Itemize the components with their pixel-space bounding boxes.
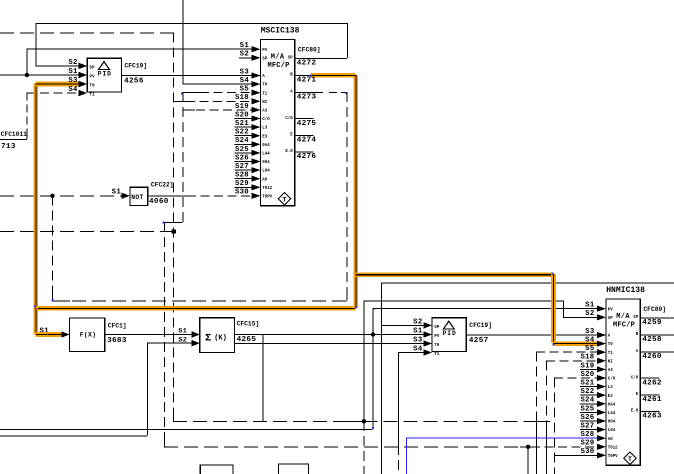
svg-text:S20: S20	[580, 371, 594, 379]
svg-text:SP: SP	[434, 325, 440, 330]
svg-text:S4: S4	[68, 86, 78, 94]
svg-text:S30: S30	[580, 448, 594, 456]
svg-text:A0: A0	[262, 178, 267, 182]
svg-text:S1: S1	[585, 302, 595, 310]
svg-text:S2: S2	[68, 59, 77, 67]
svg-text:S3: S3	[68, 77, 78, 85]
svg-text:PV: PV	[434, 334, 440, 339]
svg-text:HNMIC138: HNMIC138	[606, 286, 645, 295]
svg-text:MFC/P: MFC/P	[613, 321, 635, 329]
svg-text:S3: S3	[585, 328, 595, 336]
svg-text:SP: SP	[608, 317, 613, 321]
svg-text:S5: S5	[240, 86, 249, 94]
svg-text:T0: T0	[262, 84, 267, 88]
svg-text:4259: 4259	[642, 319, 662, 327]
svg-text:SP: SP	[633, 316, 638, 320]
svg-text:4258: 4258	[642, 336, 662, 344]
svg-text:4276: 4276	[297, 153, 317, 161]
svg-text:A0: A0	[608, 438, 613, 442]
svg-text:E3: E3	[608, 395, 613, 399]
svg-text:L3: L3	[608, 386, 613, 390]
svg-text:C/O: C/O	[285, 116, 293, 121]
svg-text:PV: PV	[608, 308, 613, 312]
svg-text:M/A: M/A	[616, 313, 630, 321]
svg-text:T1: T1	[89, 93, 95, 98]
svg-text:CFC22]: CFC22]	[151, 182, 174, 189]
svg-text:MFC/P: MFC/P	[268, 62, 290, 70]
svg-text:S4: S4	[413, 346, 423, 354]
svg-text:4060: 4060	[149, 198, 169, 206]
svg-text:4261: 4261	[642, 396, 662, 404]
svg-text:713: 713	[1, 143, 16, 151]
svg-text:SP: SP	[262, 57, 267, 61]
svg-text:NI: NI	[608, 360, 613, 364]
svg-text:4260: 4260	[642, 353, 662, 361]
svg-text:S18: S18	[235, 94, 249, 102]
svg-text:C/O: C/O	[262, 117, 270, 122]
svg-text:T: T	[283, 196, 287, 203]
svg-text:Σ: Σ	[205, 333, 211, 345]
svg-text:S5: S5	[585, 345, 594, 353]
svg-text:E3: E3	[262, 135, 267, 139]
svg-text:4262: 4262	[642, 379, 662, 387]
svg-text:004: 004	[262, 161, 270, 165]
svg-text:MSCIC138: MSCIC138	[261, 27, 300, 36]
svg-text:C/O: C/O	[631, 375, 639, 380]
svg-text:PV: PV	[262, 49, 267, 53]
svg-text:NI: NI	[262, 101, 267, 105]
svg-text:S30: S30	[235, 189, 249, 197]
svg-text:A3: A3	[262, 110, 267, 114]
svg-text:4256: 4256	[124, 78, 144, 86]
svg-text:4257: 4257	[469, 337, 489, 345]
svg-text:4271: 4271	[297, 77, 317, 85]
svg-text:L44: L44	[608, 412, 616, 416]
svg-text:PID: PID	[98, 71, 112, 78]
svg-text:CFC1]: CFC1]	[108, 323, 127, 330]
svg-text:CFC80]: CFC80]	[298, 47, 321, 54]
svg-text:4274: 4274	[297, 137, 317, 145]
svg-text:SP: SP	[288, 57, 293, 61]
svg-text:4272: 4272	[297, 60, 317, 68]
svg-text:T0: T0	[434, 343, 440, 348]
svg-text:S4: S4	[240, 77, 250, 85]
svg-text:L04: L04	[608, 429, 616, 433]
svg-text:0A4: 0A4	[262, 144, 270, 148]
svg-text:T1: T1	[262, 92, 267, 96]
svg-text:S4: S4	[585, 337, 595, 345]
svg-text:S1: S1	[240, 42, 250, 50]
svg-text:A3: A3	[608, 369, 613, 373]
svg-text:S18: S18	[580, 354, 594, 362]
svg-text:E.0: E.0	[631, 410, 639, 414]
svg-text:4275: 4275	[297, 120, 317, 128]
svg-text:3683: 3683	[107, 337, 127, 345]
svg-text:004: 004	[608, 421, 616, 425]
svg-text:S3: S3	[413, 337, 423, 345]
svg-text:S1: S1	[413, 328, 423, 336]
svg-text:S1: S1	[112, 189, 122, 197]
svg-text:T0: T0	[89, 84, 95, 89]
svg-text:CFC15]: CFC15]	[237, 321, 260, 328]
svg-text:T: T	[628, 456, 632, 463]
svg-text:S2: S2	[413, 319, 422, 327]
svg-text:PV: PV	[89, 75, 95, 80]
svg-text:S28: S28	[580, 431, 594, 439]
svg-text:L3: L3	[262, 127, 267, 131]
svg-text:S19: S19	[235, 103, 249, 111]
svg-text:C/O: C/O	[608, 377, 616, 382]
svg-text:4273: 4273	[297, 93, 317, 101]
svg-text:T1: T1	[608, 352, 613, 356]
svg-text:T012: T012	[608, 446, 618, 450]
svg-text:L04: L04	[262, 170, 270, 174]
svg-text:S1: S1	[68, 68, 78, 76]
svg-text:E.0: E.0	[285, 150, 293, 154]
svg-text:T0PV: T0PV	[262, 195, 272, 199]
svg-text:F(X): F(X)	[80, 332, 96, 339]
svg-text:PID: PID	[443, 330, 457, 337]
svg-text:S29: S29	[580, 440, 594, 448]
svg-text:M/A: M/A	[271, 54, 285, 62]
svg-text:CFC19]: CFC19]	[469, 322, 492, 329]
svg-text:T0: T0	[608, 343, 613, 347]
svg-text:SP: SP	[89, 65, 95, 70]
svg-text:0A4: 0A4	[608, 403, 616, 407]
svg-text:CFC80]: CFC80]	[643, 306, 666, 313]
svg-text:S3: S3	[240, 68, 250, 76]
svg-text:S2: S2	[585, 310, 594, 318]
svg-text:CFC19]: CFC19]	[125, 63, 148, 70]
svg-text:CFC1011: CFC1011	[1, 131, 27, 138]
svg-text:L44: L44	[262, 153, 270, 157]
svg-text:4263: 4263	[642, 413, 662, 421]
svg-text:T0PV: T0PV	[608, 455, 618, 459]
svg-text:T1: T1	[434, 352, 440, 357]
svg-text:NOT: NOT	[131, 194, 144, 201]
svg-text:4265: 4265	[237, 336, 257, 344]
svg-text:T012: T012	[262, 187, 272, 191]
svg-text:(K): (K)	[214, 334, 227, 342]
